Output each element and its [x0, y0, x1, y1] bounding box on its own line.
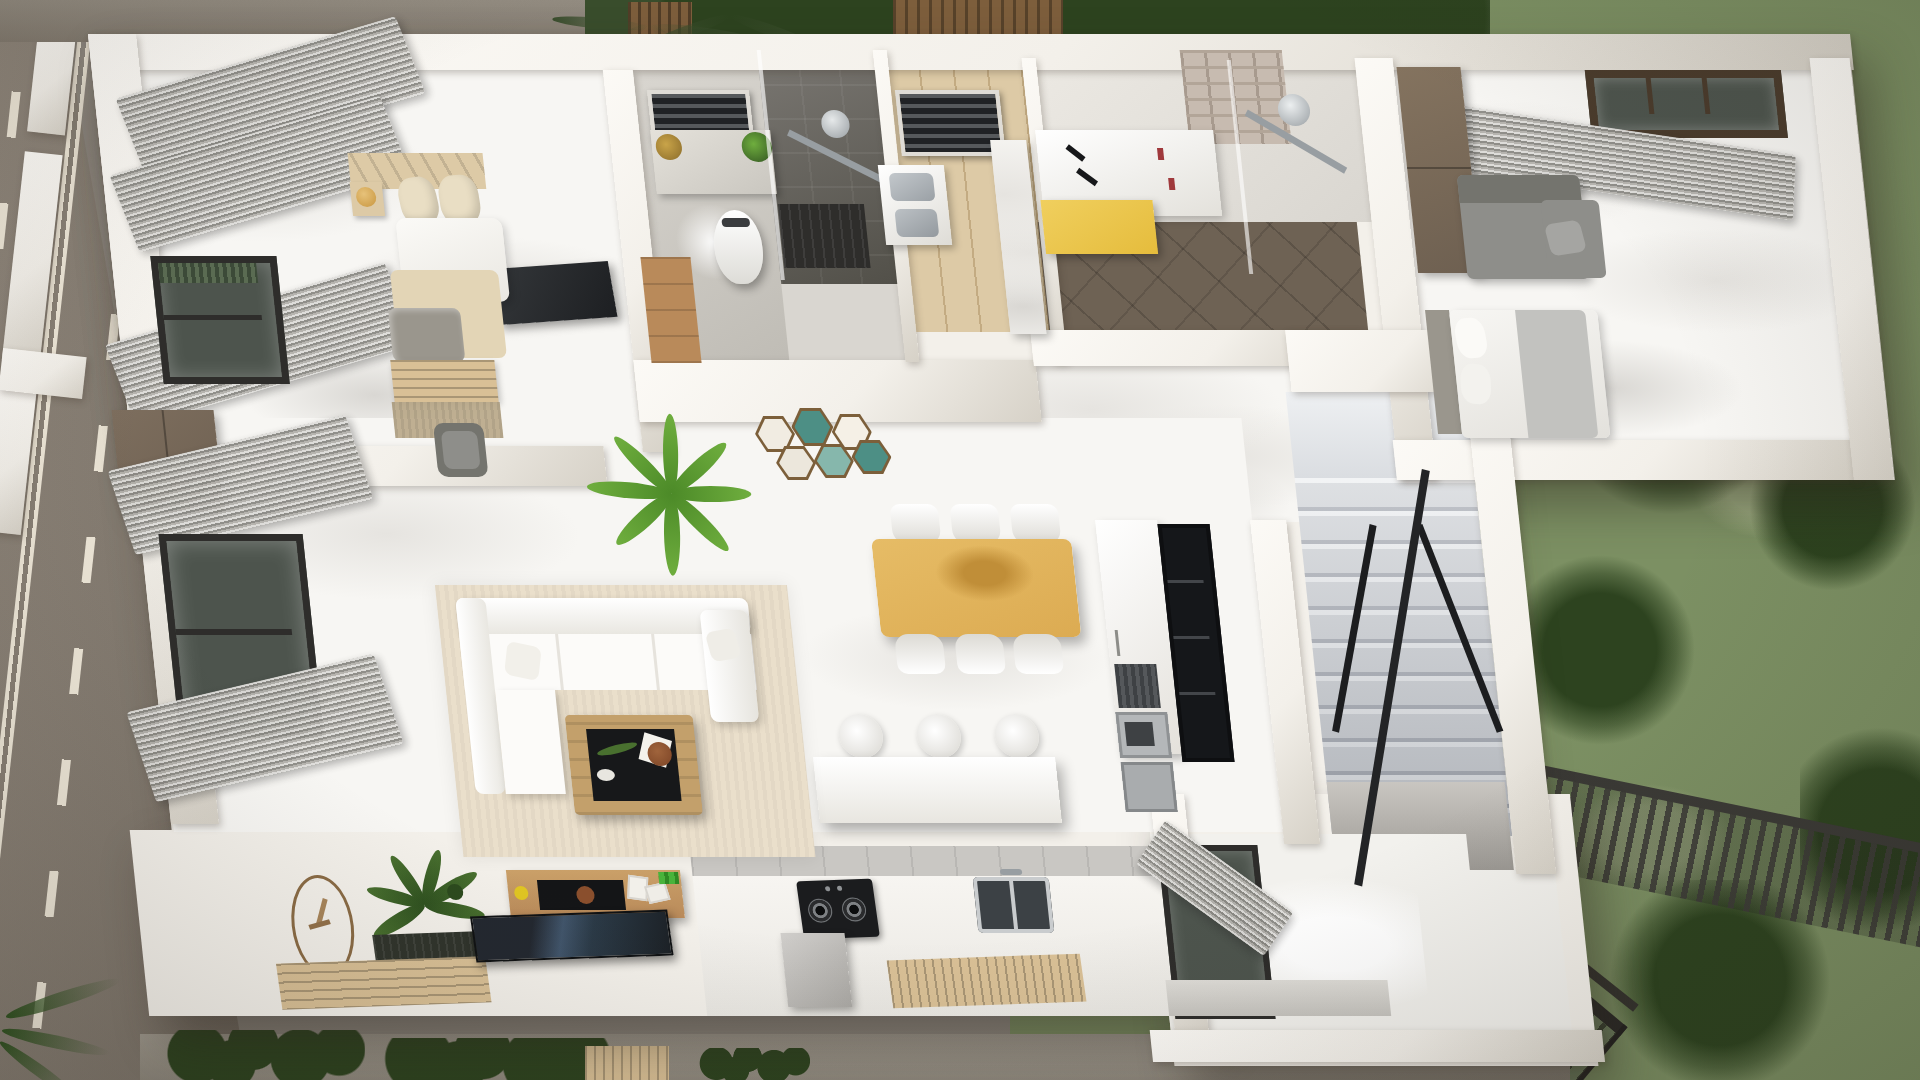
floor-terrace	[1415, 870, 1572, 1032]
dining-chair	[949, 504, 1001, 544]
burner	[840, 897, 867, 922]
scene-floorplan	[0, 0, 1920, 1080]
sofa-cushion-gap	[555, 634, 564, 690]
window-mullion	[164, 315, 263, 320]
hexagon-panel	[789, 408, 835, 446]
boundary-wall-stub	[0, 348, 87, 399]
dining-chair	[889, 504, 941, 544]
microwave	[1115, 712, 1172, 758]
bed-throw-gray	[388, 308, 466, 362]
shower-floor-mat	[778, 204, 871, 268]
burner	[807, 898, 834, 923]
sofa-chaise-seat	[495, 690, 566, 794]
coffee-table	[565, 715, 704, 815]
palm-leaf	[4, 973, 122, 1023]
potted-palm	[583, 412, 760, 572]
appliance-vent	[1114, 664, 1161, 708]
gas-cooktop	[796, 879, 880, 940]
dining-chair	[894, 634, 946, 674]
console-yellow-ball	[514, 886, 529, 900]
window-mullion	[1646, 78, 1655, 114]
utility-sink-unit	[878, 165, 952, 245]
bed-foot-bench	[390, 360, 498, 402]
terrace-step	[1165, 980, 1391, 1016]
window-master	[150, 256, 289, 384]
armchair-gray	[433, 423, 489, 477]
window-louver-strip	[158, 263, 258, 283]
sink-basin	[894, 209, 939, 237]
console-green-cubes	[658, 872, 679, 884]
range-hood-body	[780, 933, 852, 1007]
clock-hand	[308, 919, 330, 930]
display-shelf	[1173, 636, 1209, 639]
sink-basin	[889, 173, 936, 201]
hexagon-fill	[793, 411, 832, 443]
sink-divider	[1009, 881, 1018, 929]
display-shelf	[1167, 580, 1203, 583]
flatscreen-tv	[470, 910, 674, 963]
walkway-shrubs	[690, 1048, 810, 1080]
yellow-cabinet	[1040, 200, 1158, 254]
floor-bathroom-1-lower	[781, 284, 907, 362]
toilet-lid-panel	[721, 218, 750, 227]
microwave-window	[1124, 722, 1155, 746]
wardrobe-divider	[1407, 167, 1471, 169]
soap-item-red	[1157, 148, 1164, 160]
sofa-pillow	[504, 641, 542, 681]
deck-slats	[585, 1046, 669, 1080]
console-frame	[644, 882, 671, 904]
dining-chair	[1012, 634, 1064, 674]
hexagon-fill	[853, 443, 890, 471]
soap-item-red	[1168, 178, 1175, 190]
dining-table	[871, 539, 1081, 637]
double-sink	[973, 877, 1055, 933]
wood-drain-board	[887, 954, 1087, 1009]
wall-bedroom2-south	[1393, 440, 1857, 480]
gray-sofa-back	[1457, 175, 1582, 203]
cooktop-knob	[825, 886, 831, 891]
faucet	[1000, 869, 1023, 875]
sofa-cushion-gap	[651, 634, 660, 690]
palm-leaf	[552, 14, 649, 33]
display-shelf	[1179, 692, 1215, 695]
skylight-louver	[895, 90, 1006, 156]
wood-slat-mat	[276, 956, 492, 1009]
hexagon-fill	[756, 419, 793, 449]
window-mullion	[176, 629, 293, 635]
armchair-cushion	[441, 431, 481, 469]
hexagon-wall-art	[752, 408, 970, 482]
cabinet-handle	[1115, 630, 1121, 656]
bed2-blanket-gray	[1515, 310, 1598, 438]
walkway-shrubs	[365, 1038, 610, 1080]
black-faucet	[1076, 168, 1098, 186]
house	[88, 34, 1920, 1039]
cooktop-knob	[837, 886, 843, 891]
hexagon-fill	[815, 447, 852, 475]
planter-box	[893, 0, 1063, 36]
oven	[1121, 762, 1178, 812]
black-faucet	[1065, 144, 1085, 161]
dining-chair	[954, 634, 1006, 674]
palm-fronds-corner	[0, 940, 150, 1080]
kitchen-island	[813, 757, 1062, 823]
dining-chair	[1009, 504, 1061, 544]
table-dish	[596, 769, 615, 781]
bed2-pillow	[1460, 363, 1492, 405]
wall-entry-south	[1150, 1030, 1605, 1062]
hexagon-fill	[778, 449, 815, 477]
window-mullion	[1702, 78, 1711, 114]
